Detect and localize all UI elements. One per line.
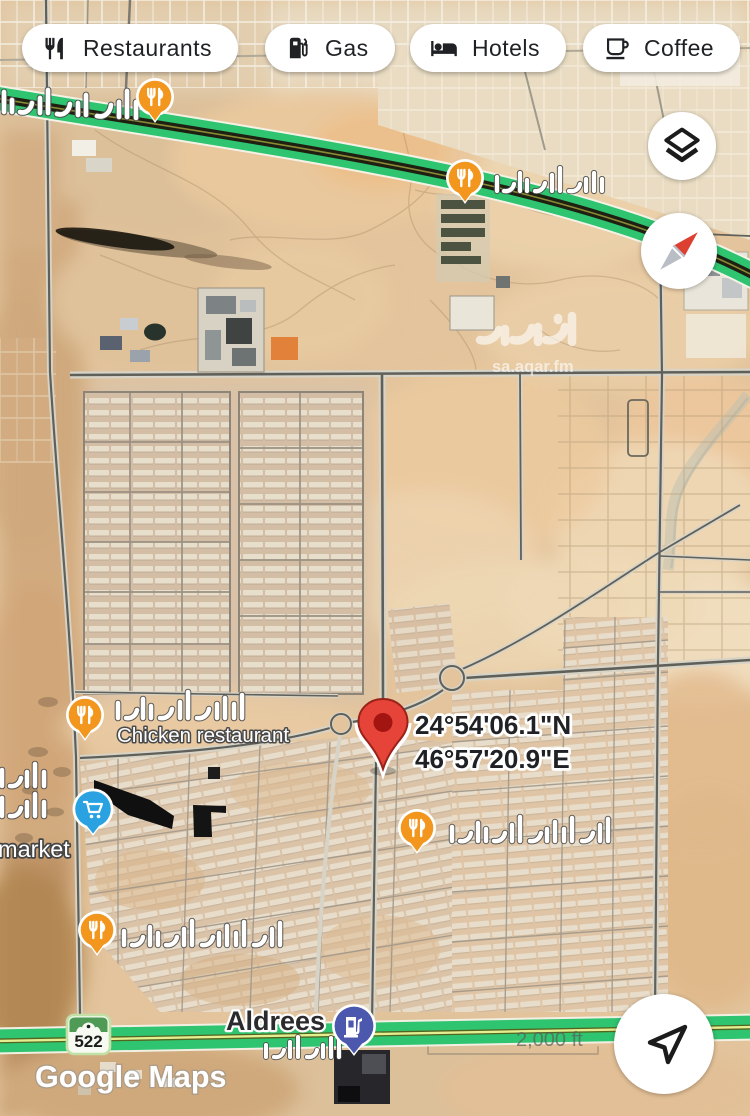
svg-text:24°54'06.1"N: 24°54'06.1"N bbox=[415, 710, 571, 740]
svg-text:46°57'20.9"E: 46°57'20.9"E bbox=[415, 744, 570, 774]
svg-text:Aldrees: Aldrees bbox=[226, 1006, 325, 1036]
svg-text:522: 522 bbox=[74, 1032, 102, 1051]
svg-text:sa.aqar.fm: sa.aqar.fm bbox=[492, 358, 574, 376]
svg-text:market: market bbox=[0, 836, 70, 862]
svg-text:2,000 ft: 2,000 ft bbox=[516, 1029, 583, 1051]
svg-text:Google Maps: Google Maps bbox=[35, 1060, 227, 1094]
svg-text:Chicken restaurant: Chicken restaurant bbox=[117, 724, 289, 747]
